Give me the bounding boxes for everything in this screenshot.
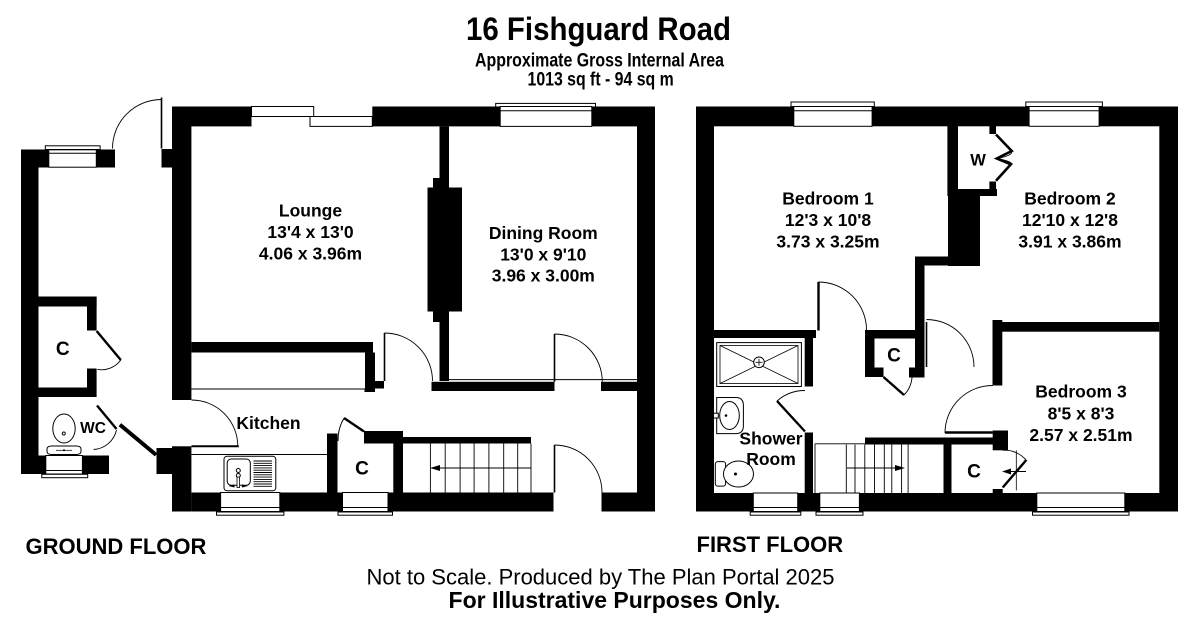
svg-text:C: C bbox=[56, 339, 70, 360]
svg-text:Bedroom 2: Bedroom 2 bbox=[1024, 188, 1116, 208]
svg-text:GROUND FLOOR: GROUND FLOOR bbox=[26, 534, 207, 559]
svg-text:13'4 x 13'0: 13'4 x 13'0 bbox=[267, 222, 353, 242]
svg-text:3.73 x 3.25m: 3.73 x 3.25m bbox=[776, 232, 879, 252]
svg-text:Shower: Shower bbox=[739, 429, 802, 449]
svg-text:W: W bbox=[970, 152, 986, 170]
svg-text:Room: Room bbox=[746, 449, 796, 469]
svg-text:8'5 x 8'3: 8'5 x 8'3 bbox=[1048, 404, 1115, 424]
svg-text:Kitchen: Kitchen bbox=[236, 413, 300, 433]
svg-text:12'3 x 10'8: 12'3 x 10'8 bbox=[785, 210, 871, 230]
svg-text:C: C bbox=[967, 462, 981, 483]
svg-text:16 Fishguard Road: 16 Fishguard Road bbox=[466, 11, 731, 47]
svg-text:Approximate Gross Internal Are: Approximate Gross Internal Area bbox=[475, 51, 724, 72]
svg-text:Dining Room: Dining Room bbox=[489, 223, 598, 243]
svg-text:1013 sq ft - 94 sq m: 1013 sq ft - 94 sq m bbox=[528, 70, 674, 91]
svg-text:Not to Scale. Produced by The: Not to Scale. Produced by The Plan Porta… bbox=[367, 565, 835, 590]
svg-text:3.96 x 3.00m: 3.96 x 3.00m bbox=[492, 266, 595, 286]
svg-text:C: C bbox=[887, 346, 901, 367]
svg-text:2.57 x 2.51m: 2.57 x 2.51m bbox=[1029, 425, 1132, 445]
svg-text:C: C bbox=[355, 459, 369, 480]
svg-text:WC: WC bbox=[80, 420, 106, 437]
svg-text:4.06 x 3.96m: 4.06 x 3.96m bbox=[259, 244, 362, 264]
svg-text:Lounge: Lounge bbox=[279, 201, 342, 221]
svg-text:13'0 x 9'10: 13'0 x 9'10 bbox=[500, 244, 586, 264]
svg-text:For Illustrative Purposes Only: For Illustrative Purposes Only. bbox=[449, 587, 781, 613]
svg-text:12'10 x 12'8: 12'10 x 12'8 bbox=[1022, 210, 1118, 230]
svg-text:FIRST FLOOR: FIRST FLOOR bbox=[697, 532, 844, 557]
svg-text:Bedroom 3: Bedroom 3 bbox=[1035, 382, 1127, 402]
svg-text:3.91 x 3.86m: 3.91 x 3.86m bbox=[1018, 232, 1121, 252]
svg-text:Bedroom 1: Bedroom 1 bbox=[782, 188, 874, 208]
